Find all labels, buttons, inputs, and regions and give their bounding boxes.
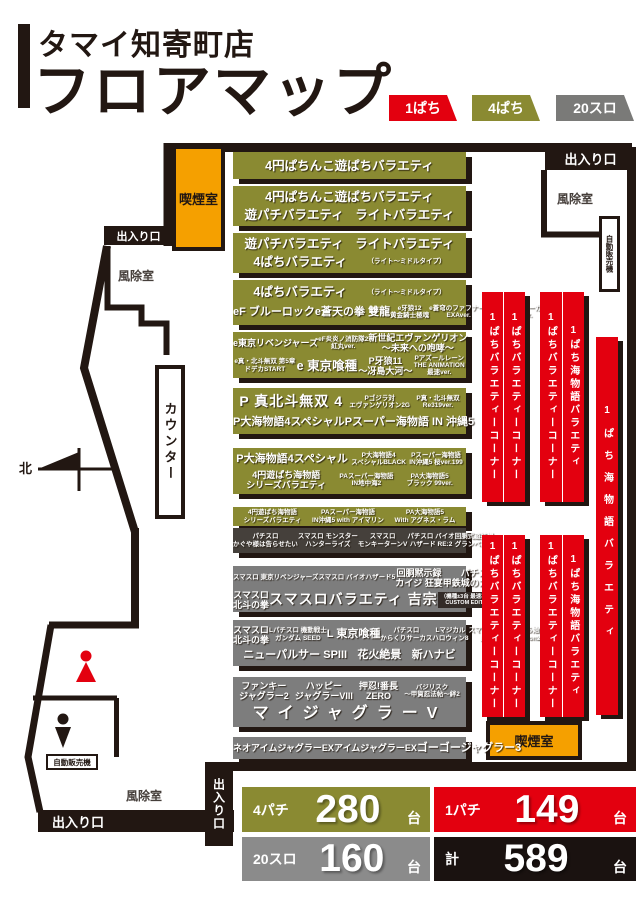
- machine-label: ライトバラエティ: [355, 208, 454, 222]
- machine-band-row: 4円遊ぱち海物語シリーズバラエティPAスーパー海物語IN沖縄5 with アイマ…: [233, 509, 466, 524]
- machine-label: スマスロ北斗の拳: [233, 590, 269, 610]
- machine-band-7: P大海物語4スペシャルP大海物語4スペシャルBLACKPスーパー海物語IN沖縄5…: [233, 448, 466, 494]
- machine-label: （ライト～ミドルタイプ）: [368, 289, 446, 296]
- machine-label: e真・北斗無双 第5章ドデカSTART: [234, 358, 295, 373]
- machine-label: L 東京喰種: [327, 628, 381, 640]
- machine-band-5: e東京リベンジャーズeF炎炎ノ消防隊2紅丸ver.新世紀エヴァンゲリオン～未来へ…: [233, 332, 466, 378]
- machine-band-row: P大海物語4スペシャルPスーパー海物語 IN 沖縄5: [233, 416, 466, 428]
- machine-label: ライトバラエティ: [355, 237, 454, 251]
- machine-label: 4円ぱちんこ遊ぱちバラエティ: [265, 159, 434, 173]
- machine-label: バジリスク～甲賀忍法帖～絆2: [404, 684, 460, 699]
- machine-label: ネオアイムジャグラーEX: [233, 743, 334, 753]
- machine-label: eF炎炎ノ消防隊2紅丸ver.: [318, 336, 368, 351]
- machine-label: PA大海物語5With アグネス・ラム: [395, 509, 456, 524]
- machine-label: e 東京喰種: [297, 359, 357, 373]
- machine-label: スマスロバラエティ 吉宗: [269, 592, 438, 608]
- machine-label: Lマジカルハロウィン8: [432, 627, 468, 642]
- machine-band-row: e東京リベンジャーズeF炎炎ノ消防隊2紅丸ver.新世紀エヴァンゲリオン～未来へ…: [233, 333, 466, 353]
- machine-band-row: スマスロ北斗の拳Lパチスロ 機動戦士ガンダム SEEDL 東京喰種パチスロからく…: [233, 625, 466, 645]
- machine-band-1: 4円ぱちんこ遊ぱちバラエティ: [233, 152, 466, 179]
- machine-label: 4円ぱちんこ遊ぱちバラエティ: [265, 190, 434, 204]
- machine-label: 押忍!番長ZERO: [359, 681, 398, 701]
- machine-label: パチスロからくりサーカス: [380, 627, 432, 642]
- machine-label: スマスロ バイオハザード5: [318, 574, 395, 581]
- windbreak-room-top-left: 風除室: [118, 267, 154, 284]
- machine-label: PAスーパー海物語IN沖縄5 with アイマリン: [312, 509, 384, 524]
- machine-label: eF ブルーロック: [233, 306, 315, 318]
- machine-band-row: eF ブルーロックe蒼天の拳 雙龍e牙狼12黄金騎士極魂e蒼穹のファフナー3EX…: [233, 305, 466, 320]
- machine-band-12: ファンキージャグラー2ハッピージャグラーVIII押忍!番長ZEROバジリスク～甲…: [233, 677, 466, 727]
- vending-machine-right: 自動販売機: [599, 216, 620, 292]
- machine-label: e東京リベンジャーズ: [233, 338, 318, 348]
- machine-label: ゴーゴージャグラー3: [417, 742, 521, 754]
- machine-label: 花火絶景: [357, 649, 401, 661]
- vending-machine-bottom-left: 自動販売機: [46, 754, 98, 770]
- machine-band-row: ニューパルサー SPIII花火絶景新ハナビ: [233, 649, 466, 661]
- machine-label: 新世紀エヴァンゲリオン～未来への咆哮～: [368, 333, 467, 353]
- machine-label: P大海物語4スペシャル: [236, 453, 348, 465]
- machine-band-row: e真・北斗無双 第5章ドデカSTARTe 東京喰種P牙狼11～冴島大河～Pアズー…: [233, 355, 466, 377]
- machine-band-10: スマスロ 東京リベンジャーズスマスロ バイオハザード5回胴黙示録カイジ 狂宴パチ…: [233, 566, 466, 612]
- machine-band-8: 4円遊ぱち海物語シリーズバラエティPAスーパー海物語IN沖縄5 with アイマ…: [233, 507, 466, 526]
- machine-band-2: 4円ぱちんこ遊ぱちバラエティ遊パチバラエティライトバラエティ: [233, 186, 466, 226]
- male-restroom-icon: [55, 714, 71, 749]
- machine-band-row: 4ぱちバラエティ（ライト～ミドルタイプ）: [233, 285, 466, 299]
- count-20slo: 20スロ 160 台: [242, 837, 430, 881]
- machine-label: e蒼穹のファフナー3EXAver.: [429, 305, 488, 320]
- machine-label: Pスーパー海物語IN沖縄5 桜ver.199: [409, 452, 462, 467]
- machine-band-row: P大海物語4スペシャルP大海物語4スペシャルBLACKPスーパー海物語IN沖縄5…: [233, 452, 466, 467]
- machine-label: スマスロ モンスターハンターライズ: [298, 533, 358, 548]
- red-banner-bottom-2: 1ぱちバラエティーコーナー 1ぱち海物語バラエティ: [540, 535, 584, 717]
- machine-band-11: スマスロ北斗の拳Lパチスロ 機動戦士ガンダム SEEDL 東京喰種パチスロからく…: [233, 620, 466, 666]
- count-1pachi: 1パチ 149 台: [434, 787, 636, 832]
- machine-band-row: 遊パチバラエティライトバラエティ: [233, 237, 466, 251]
- machine-band-4: 4ぱちバラエティ（ライト～ミドルタイプ）eF ブルーロックe蒼天の拳 雙龍e牙狼…: [233, 280, 466, 325]
- windbreak-room-top-right: 風除室: [557, 190, 593, 207]
- machine-label: ファンキージャグラー2: [239, 681, 289, 701]
- machine-label: ニューパルサー SPIII: [243, 649, 347, 661]
- machine-label: パチスロかぐや様は告らせたい: [233, 533, 298, 548]
- smoking-room-top: 喫煙室: [172, 145, 225, 251]
- machine-label: e牙狼12黄金騎士極魂: [390, 305, 429, 320]
- machine-label: P真・北斗無双Re319ver.: [416, 395, 459, 410]
- entrance-top-right: 出入り口: [545, 147, 636, 170]
- red-banner-bottom-1: 1ぱちバラエティーコーナー 1ぱちバラエティーコーナー: [482, 535, 525, 717]
- machine-label: パチスロ バイオハザード RE:2: [407, 533, 454, 548]
- machine-label: マイジャグラーV: [253, 705, 447, 723]
- machine-label: 4ぱちバラエティ: [253, 255, 347, 269]
- machine-label: P大海物語4スペシャルBLACK: [351, 452, 406, 467]
- floor-map-page: タマイ知寄町店 フロアマップ 1ぱち 4ぱち 20スロ: [0, 0, 640, 905]
- machine-label: 4円遊ぱち海物語シリーズバラエティ: [244, 509, 302, 524]
- machine-label: 遊パチバラエティ: [244, 237, 343, 251]
- count-4pachi: 4パチ 280 台: [242, 787, 430, 832]
- windbreak-room-bottom-left: 風除室: [126, 787, 162, 804]
- machine-band-row: 遊パチバラエティライトバラエティ: [233, 208, 466, 222]
- machine-band-9: パチスロかぐや様は告らせたいスマスロ モンスターハンターライズスマスロモンキータ…: [233, 528, 466, 553]
- machine-band-row: 4円ぱちんこ遊ぱちバラエティ: [233, 159, 466, 173]
- machine-label: 4ぱちバラエティ: [253, 285, 347, 299]
- machine-label: 新ハナビ: [412, 649, 456, 661]
- machine-label: アイムジャグラーEX: [334, 743, 417, 753]
- machine-label: PAスーパー海物語IN地中海2: [339, 473, 393, 488]
- machine-label: P牙狼11～冴島大河～: [358, 356, 412, 376]
- entrance-top-left: 出入り口: [104, 226, 173, 245]
- machine-label: 遊パチバラエティ: [244, 208, 343, 222]
- machine-label: ハッピージャグラーVIII: [295, 681, 353, 701]
- machine-band-row: ファンキージャグラー2ハッピージャグラーVIII押忍!番長ZEROバジリスク～甲…: [233, 681, 466, 701]
- machine-band-row: 4円遊ぱち海物語シリーズバラエティPAスーパー海物語IN地中海2PA大海物語5ブ…: [233, 470, 466, 490]
- machine-label: PアズールレーンTHE ANIMATION最速ver.: [414, 355, 465, 377]
- north-arrow-icon: [38, 452, 79, 469]
- red-banner-right: 1ぱち海物語バラエティ: [596, 337, 618, 715]
- machine-label: Lパチスロ 機動戦士ガンダム SEED: [269, 627, 327, 642]
- female-restroom-icon: [76, 651, 96, 683]
- machine-band-13: ネオアイムジャグラーEXアイムジャグラーEXゴーゴージャグラー3: [233, 737, 466, 759]
- machine-label: （ライト～ミドルタイプ）: [368, 258, 446, 265]
- entrance-bottom-center: 出入り口: [205, 762, 233, 846]
- machine-band-row: スマスロ北斗の拳スマスロバラエティ 吉宗（機種±3台 最速導入）CUSTOM E…: [233, 590, 466, 610]
- machine-label: スマスロ 東京リベンジャーズ: [233, 574, 318, 581]
- machine-label: スマスロモンキーターンV: [358, 533, 408, 548]
- machine-label: 回胴黙示録カイジ 狂宴: [395, 568, 443, 588]
- north-label: 北: [19, 458, 32, 477]
- machine-band-row: マイジャグラーV: [233, 705, 466, 723]
- machine-band-row: 4ぱちバラエティ（ライト～ミドルタイプ）: [233, 255, 466, 269]
- machine-label: P大海物語4スペシャル: [233, 416, 345, 428]
- machine-band-row: ネオアイムジャグラーEXアイムジャグラーEXゴーゴージャグラー3: [233, 742, 466, 754]
- machine-label: スマスロ北斗の拳: [233, 625, 269, 645]
- red-banner-top-2: 1ぱちバラエティーコーナー 1ぱち海物語バラエティ: [540, 292, 584, 502]
- machine-band-3: 遊パチバラエティライトバラエティ4ぱちバラエティ（ライト～ミドルタイプ）: [233, 233, 466, 273]
- machine-label: P 真北斗無双 4: [239, 394, 343, 410]
- machine-band-6: P 真北斗無双 4Pゴジラ対エヴァンゲリオン2GP真・北斗無双Re319ver.…: [233, 388, 466, 434]
- counter: カウンター: [155, 365, 185, 519]
- machine-label: 4円遊ぱち海物語シリーズバラエティ: [246, 470, 326, 490]
- machine-label: e蒼天の拳 雙龍: [315, 306, 390, 318]
- red-banner-top-1: 1ぱちバラエティーコーナー 1ぱちバラエティーコーナー: [482, 292, 525, 502]
- count-total: 計 589 台: [434, 837, 636, 881]
- machine-label: Pゴジラ対エヴァンゲリオン2G: [349, 395, 410, 410]
- machine-band-row: パチスロかぐや様は告らせたいスマスロ モンスターハンターライズスマスロモンキータ…: [233, 533, 466, 548]
- machine-band-row: スマスロ 東京リベンジャーズスマスロ バイオハザード5回胴黙示録カイジ 狂宴パチ…: [233, 568, 466, 588]
- machine-label: Pスーパー海物語 IN 沖縄5: [345, 416, 474, 428]
- machine-band-row: 4円ぱちんこ遊ぱちバラエティ: [233, 190, 466, 204]
- machine-band-row: P 真北斗無双 4Pゴジラ対エヴァンゲリオン2GP真・北斗無双Re319ver.: [233, 394, 466, 410]
- machine-label: PA大海物語5ブラック 99ver.: [407, 473, 453, 488]
